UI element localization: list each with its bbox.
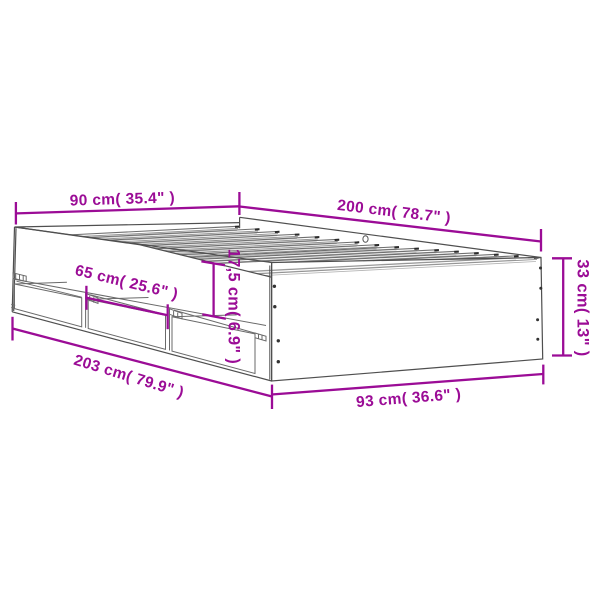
svg-text:93 cm( 36.6" ): 93 cm( 36.6" ) [355, 386, 461, 411]
svg-text:17,5 cm( 6.9" ): 17,5 cm( 6.9" ) [225, 249, 243, 364]
svg-text:33 cm( 13" ): 33 cm( 13" ) [574, 259, 592, 356]
svg-text:90 cm( 35.4" ): 90 cm( 35.4" ) [69, 189, 175, 209]
svg-text:200 cm( 78.7" ): 200 cm( 78.7" ) [336, 197, 451, 227]
